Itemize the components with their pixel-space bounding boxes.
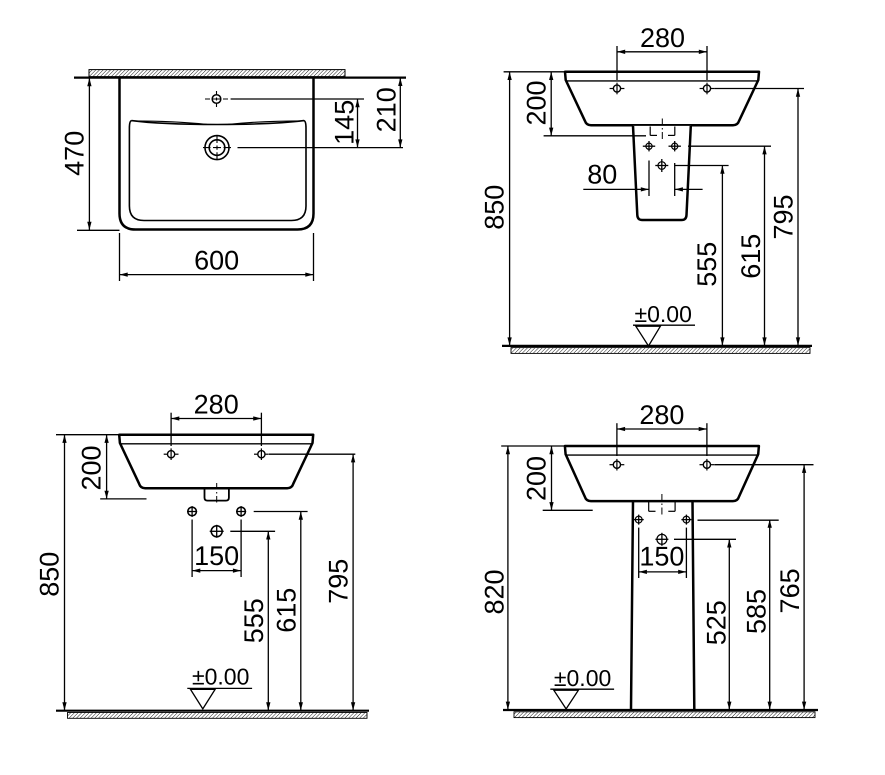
svg-text:±0.00: ±0.00	[635, 301, 692, 327]
svg-text:615: 615	[736, 234, 766, 279]
svg-text:280: 280	[194, 390, 239, 420]
svg-text:±0.00: ±0.00	[554, 665, 611, 691]
svg-text:280: 280	[640, 23, 685, 53]
svg-text:150: 150	[194, 541, 239, 571]
svg-text:850: 850	[35, 552, 65, 597]
svg-text:210: 210	[371, 87, 401, 132]
svg-text:765: 765	[775, 568, 805, 613]
svg-text:555: 555	[239, 598, 269, 643]
svg-text:850: 850	[479, 185, 509, 230]
svg-text:200: 200	[76, 445, 106, 490]
svg-text:80: 80	[587, 159, 617, 189]
svg-text:200: 200	[522, 456, 552, 501]
svg-text:795: 795	[324, 559, 354, 604]
svg-text:615: 615	[271, 588, 301, 633]
svg-text:795: 795	[768, 194, 798, 239]
svg-text:820: 820	[480, 569, 510, 614]
svg-text:±0.00: ±0.00	[192, 664, 249, 690]
svg-text:150: 150	[639, 542, 684, 572]
svg-text:145: 145	[330, 100, 360, 145]
svg-text:555: 555	[692, 242, 722, 287]
svg-text:600: 600	[194, 246, 239, 276]
svg-text:280: 280	[639, 400, 684, 430]
svg-text:585: 585	[741, 589, 771, 634]
svg-text:470: 470	[59, 131, 89, 176]
svg-text:525: 525	[701, 600, 731, 645]
svg-text:200: 200	[522, 80, 552, 125]
